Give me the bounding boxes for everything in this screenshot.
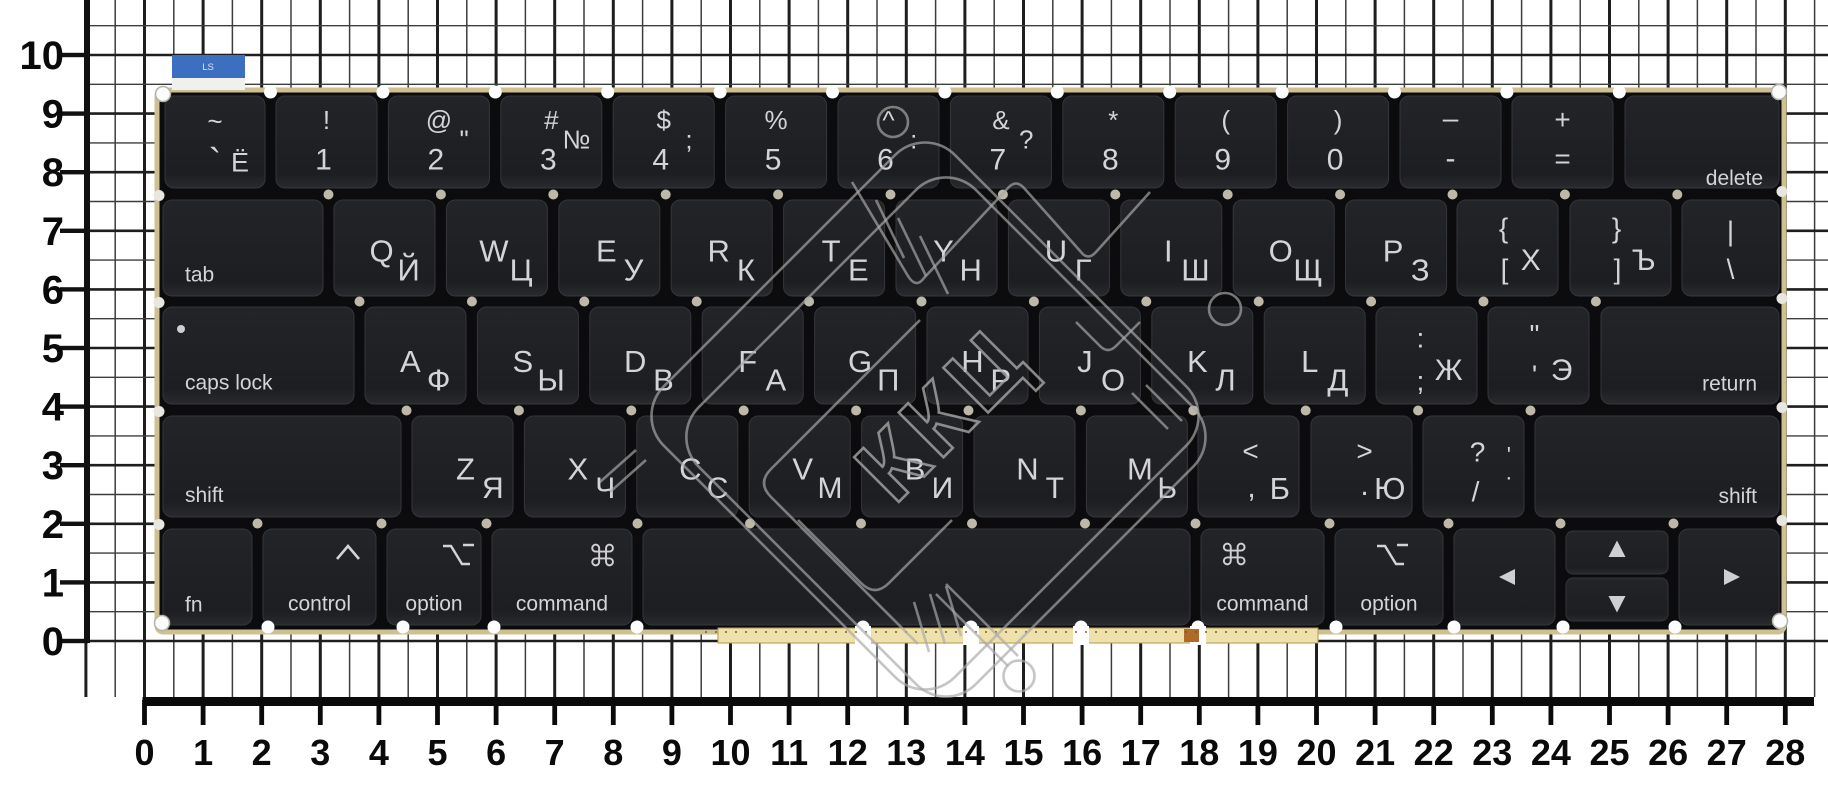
svg-text:A: A xyxy=(400,344,421,379)
svg-text:command: command xyxy=(1216,593,1308,616)
svg-text::: : xyxy=(910,124,917,154)
svg-text:): ) xyxy=(1334,105,1343,135)
svg-text:6: 6 xyxy=(42,268,64,312)
svg-text:Ж: Ж xyxy=(1435,354,1463,387)
svg-text:5: 5 xyxy=(765,144,782,177)
svg-text:W: W xyxy=(479,233,509,268)
svg-text:}: } xyxy=(1612,212,1621,243)
svg-text:D: D xyxy=(624,344,646,379)
svg-text:Я: Я xyxy=(482,472,504,505)
svg-text:option: option xyxy=(1360,593,1417,616)
svg-text:,: , xyxy=(1247,471,1255,504)
svg-text:21: 21 xyxy=(1355,732,1395,773)
svg-text:.: . xyxy=(1360,469,1368,502)
svg-text:Ш: Ш xyxy=(1181,253,1209,288)
svg-text:Ц: Ц xyxy=(510,253,533,288)
svg-text:?: ? xyxy=(1470,436,1486,467)
svg-text:4: 4 xyxy=(42,386,65,430)
svg-text:caps lock: caps lock xyxy=(185,371,273,394)
svg-text:R: R xyxy=(708,233,730,268)
svg-text:Т: Т xyxy=(1046,472,1064,505)
svg-text:М: М xyxy=(818,472,843,505)
svg-text:": " xyxy=(459,124,468,154)
svg-text:%: % xyxy=(765,105,788,135)
svg-text:Ф: Ф xyxy=(427,362,451,397)
svg-text:24: 24 xyxy=(1531,732,1571,773)
svg-text:10: 10 xyxy=(710,732,750,773)
svg-text:0: 0 xyxy=(1327,144,1344,177)
svg-text:tab: tab xyxy=(185,264,214,287)
svg-text:15: 15 xyxy=(1003,732,1043,773)
svg-text:22: 22 xyxy=(1414,732,1454,773)
svg-text:4: 4 xyxy=(369,732,389,773)
svg-text:K: K xyxy=(1187,344,1208,379)
svg-text:3: 3 xyxy=(42,444,64,488)
svg-text:9: 9 xyxy=(42,93,64,137)
svg-text:!: ! xyxy=(323,105,330,135)
svg-text:9: 9 xyxy=(1214,144,1231,177)
svg-text:7: 7 xyxy=(990,144,1007,177)
svg-text:fn: fn xyxy=(185,594,203,617)
svg-text:1: 1 xyxy=(42,561,64,605)
svg-text:shift: shift xyxy=(185,484,224,507)
svg-text:\: \ xyxy=(1727,254,1735,285)
svg-text:7: 7 xyxy=(42,210,64,254)
svg-text:5: 5 xyxy=(427,732,447,773)
svg-text:Щ: Щ xyxy=(1293,253,1322,288)
svg-text:O: O xyxy=(1269,233,1293,268)
svg-text:23: 23 xyxy=(1472,732,1512,773)
svg-text:Н: Н xyxy=(960,253,982,288)
svg-text:>: > xyxy=(1356,435,1372,466)
svg-text:З: З xyxy=(1411,253,1430,288)
svg-text:28: 28 xyxy=(1765,732,1805,773)
svg-text:Ё: Ё xyxy=(231,147,249,177)
svg-text:option: option xyxy=(405,593,462,616)
svg-text:[: [ xyxy=(1501,254,1509,285)
svg-text:Д: Д xyxy=(1327,362,1348,397)
svg-text:3: 3 xyxy=(310,732,330,773)
svg-text:;: ; xyxy=(1417,365,1425,396)
svg-text:<: < xyxy=(1242,435,1258,466)
svg-text:L: L xyxy=(1301,344,1318,379)
svg-text:3: 3 xyxy=(540,144,557,177)
svg-text:2: 2 xyxy=(428,144,445,177)
svg-text:-: - xyxy=(1446,142,1456,175)
svg-text:№: № xyxy=(563,124,591,154)
svg-text:У: У xyxy=(624,253,644,288)
svg-text:&: & xyxy=(992,105,1009,135)
svg-text:18: 18 xyxy=(1179,732,1219,773)
svg-text:command: command xyxy=(516,593,608,616)
svg-text:2: 2 xyxy=(252,732,272,773)
svg-text:1: 1 xyxy=(315,144,332,177)
svg-text:I: I xyxy=(1164,233,1173,268)
svg-text:@: @ xyxy=(426,105,452,135)
svg-text:~: ~ xyxy=(207,106,222,136)
svg-text:Ю: Ю xyxy=(1374,471,1405,506)
svg-text:": " xyxy=(1530,319,1540,350)
svg-text:{: { xyxy=(1499,212,1508,243)
svg-text:А: А xyxy=(766,362,787,397)
svg-text:6: 6 xyxy=(486,732,506,773)
svg-text:(: ( xyxy=(1221,105,1230,135)
svg-text:F: F xyxy=(738,344,757,379)
svg-text:Q: Q xyxy=(369,233,393,268)
svg-text:14: 14 xyxy=(945,732,985,773)
svg-text:10: 10 xyxy=(20,34,65,78)
svg-text:20: 20 xyxy=(1296,732,1336,773)
svg-text:control: control xyxy=(288,593,351,616)
svg-text:shift: shift xyxy=(1718,485,1757,508)
svg-text:Л: Л xyxy=(1215,362,1235,397)
svg-text:Х: Х xyxy=(1521,244,1541,277)
svg-text:delete: delete xyxy=(1706,167,1763,190)
svg-text:Z: Z xyxy=(456,452,475,487)
svg-text:?: ? xyxy=(1019,124,1033,154)
svg-text:Ы: Ы xyxy=(537,362,564,397)
svg-text:19: 19 xyxy=(1238,732,1278,773)
svg-text:Э: Э xyxy=(1551,354,1573,387)
svg-text:T: T xyxy=(822,233,841,268)
svg-text:8: 8 xyxy=(603,732,623,773)
svg-text:V: V xyxy=(792,452,813,487)
svg-text:Е: Е xyxy=(848,253,869,288)
svg-text:N: N xyxy=(1016,452,1038,487)
svg-text:X: X xyxy=(568,452,589,487)
svg-text:25: 25 xyxy=(1589,732,1629,773)
svg-text:/: / xyxy=(1472,476,1480,507)
svg-text:`: ` xyxy=(209,142,222,184)
svg-text:0: 0 xyxy=(42,620,64,664)
svg-text:К: К xyxy=(737,253,755,288)
svg-text:P: P xyxy=(1383,233,1404,268)
svg-text:G: G xyxy=(848,344,872,379)
svg-text:*: * xyxy=(1108,105,1118,135)
svg-text:$: $ xyxy=(656,105,671,135)
svg-text:#: # xyxy=(544,105,559,135)
svg-text:Ъ: Ъ xyxy=(1632,244,1656,277)
svg-text:|: | xyxy=(1727,215,1734,246)
svg-text:LS: LS xyxy=(202,62,214,73)
svg-text:Й: Й xyxy=(398,252,420,288)
svg-text:12: 12 xyxy=(828,732,868,773)
svg-text:9: 9 xyxy=(662,732,682,773)
svg-text:11: 11 xyxy=(770,732,808,773)
svg-text:.: . xyxy=(1506,460,1512,485)
svg-text:1: 1 xyxy=(193,732,213,773)
svg-text:5: 5 xyxy=(42,327,64,371)
svg-text:=: = xyxy=(1554,143,1570,174)
svg-text:+: + xyxy=(1554,104,1570,135)
svg-text:16: 16 xyxy=(1062,732,1102,773)
svg-text:26: 26 xyxy=(1648,732,1688,773)
svg-text:E: E xyxy=(596,233,617,268)
svg-text:2: 2 xyxy=(42,503,64,547)
svg-text:17: 17 xyxy=(1121,732,1161,773)
svg-text:4: 4 xyxy=(652,144,669,177)
svg-text:': ' xyxy=(1532,360,1537,391)
svg-text:О: О xyxy=(1101,362,1125,397)
svg-text:7: 7 xyxy=(545,732,565,773)
svg-text:Б: Б xyxy=(1270,471,1290,506)
svg-text:–: – xyxy=(1443,102,1459,133)
svg-text:return: return xyxy=(1702,372,1757,395)
svg-text:8: 8 xyxy=(42,151,64,195)
svg-text:S: S xyxy=(513,344,534,379)
svg-text::: : xyxy=(1417,323,1425,354)
svg-text:8: 8 xyxy=(1102,144,1119,177)
svg-text:J: J xyxy=(1077,344,1093,379)
svg-text:27: 27 xyxy=(1707,732,1747,773)
svg-text:]: ] xyxy=(1614,254,1622,285)
svg-text:;: ; xyxy=(685,124,692,154)
svg-text:0: 0 xyxy=(134,732,154,773)
svg-text:13: 13 xyxy=(886,732,926,773)
